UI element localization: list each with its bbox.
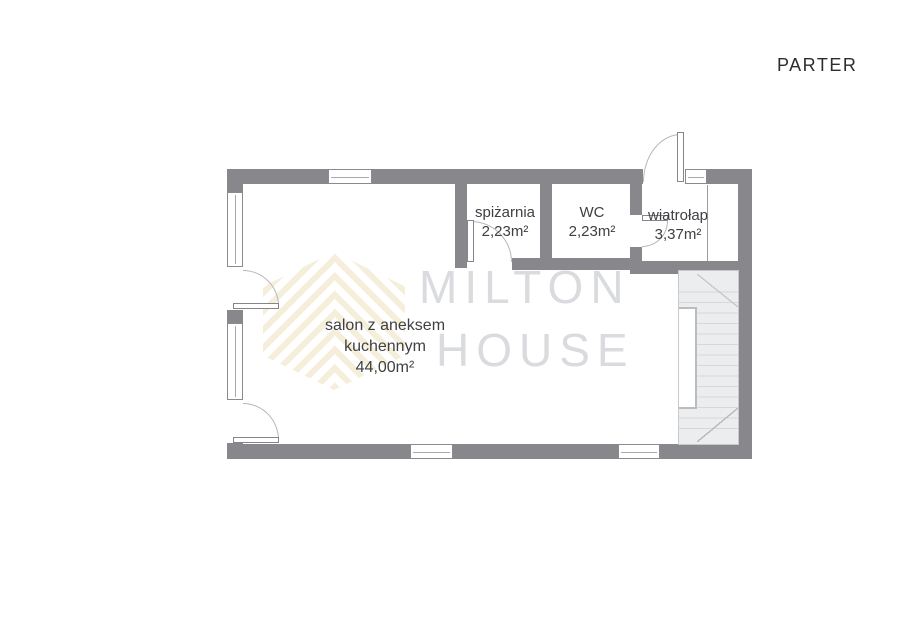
room-area: 2,23m² <box>450 222 560 241</box>
room-area: 3,37m² <box>631 225 725 244</box>
door-swing-entrance <box>643 134 681 182</box>
floor-title: PARTER <box>777 55 857 76</box>
window-left-upper <box>227 192 243 267</box>
window-top <box>328 169 372 184</box>
watermark-brand-line2: HOUSE <box>436 327 635 373</box>
room-label-vestibule: wiatrołap 3,37m² <box>631 206 725 244</box>
wall-bottom-right-segment <box>660 444 752 459</box>
stair-winder-top <box>697 274 738 307</box>
wall-left-top-corner <box>227 169 243 192</box>
door-swing-terrace-upper <box>243 270 279 306</box>
stair-void-railing <box>679 307 697 409</box>
room-area: 44,00m² <box>310 357 460 378</box>
window-bottom-left <box>410 444 453 459</box>
wall-right <box>738 169 752 459</box>
wall-pantry-wc-bottom <box>512 258 638 270</box>
door-leaf-terrace-lower <box>233 437 279 443</box>
wall-bottom-left-segment <box>227 444 410 459</box>
window-pane-line <box>413 452 450 453</box>
door-swing-terrace-lower <box>243 403 279 440</box>
room-name-line2: kuchennym <box>310 336 460 357</box>
window-entrance-side <box>685 169 707 184</box>
room-label-living-room: salon z aneksem kuchennym 44,00m² <box>310 315 460 378</box>
window-pane-line <box>621 452 657 453</box>
room-label-pantry: spiżarnia 2,23m² <box>450 203 560 241</box>
room-name: spiżarnia <box>450 203 560 222</box>
window-pane-line <box>331 177 369 178</box>
door-leaf-entrance <box>677 132 684 182</box>
window-pane-line <box>688 177 704 178</box>
room-name: WC <box>552 203 632 222</box>
room-label-wc: WC 2,23m² <box>552 203 632 241</box>
window-left-lower <box>227 323 243 400</box>
wall-top-middle-segment <box>372 169 643 184</box>
stair-winder-bottom <box>697 408 738 442</box>
window-pane-line <box>235 326 236 397</box>
room-area: 2,23m² <box>552 222 632 241</box>
window-bottom-right <box>618 444 660 459</box>
floor-plan: PARTER MILTON HOUSE <box>0 0 905 640</box>
watermark-brand-line1: MILTON <box>419 264 631 310</box>
room-name: wiatrołap <box>631 206 725 225</box>
wall-left-middle-segment <box>227 310 243 323</box>
door-leaf-terrace-upper <box>233 303 279 309</box>
room-name: salon z aneksem <box>310 315 460 336</box>
window-pane-line <box>235 195 236 264</box>
wall-bottom-middle-segment <box>453 444 618 459</box>
